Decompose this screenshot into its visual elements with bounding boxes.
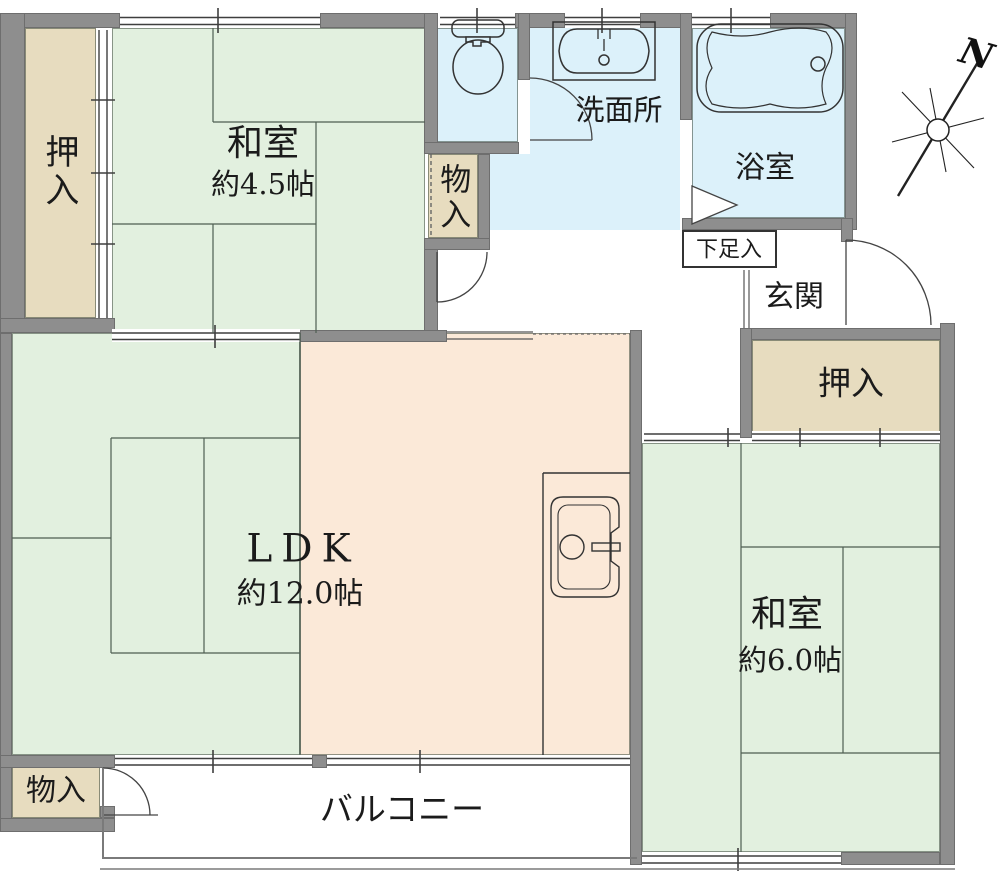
wash-basin-icon — [553, 22, 655, 80]
kitchen-sink-icon — [543, 473, 630, 755]
japanese-room-60-label: 和室 — [751, 596, 823, 634]
window-ldk-bottom-2 — [327, 750, 630, 773]
closet-top-left-label: 押入 — [40, 134, 76, 210]
window-ldk-bottom-1 — [115, 750, 312, 773]
ldk-top-opening — [447, 332, 630, 339]
balcony-label: バルコニー — [320, 793, 484, 828]
japanese-room-60-size: 約6.0帖 — [738, 645, 842, 675]
toilet-icon — [452, 20, 504, 94]
bathtub-icon — [697, 24, 843, 112]
sliding-door-room45-ldk — [112, 325, 300, 348]
japanese-room-45-label: 和室 — [227, 125, 299, 163]
closet-tl-fusuma — [91, 30, 115, 318]
storage-top-label: 物入 — [436, 163, 469, 233]
window-top-room45 — [120, 8, 320, 33]
door-storage-top — [437, 252, 487, 302]
entrance-step-line — [744, 270, 749, 328]
plan-linework: N — [0, 0, 1000, 877]
ldk-size: 約12.0帖 — [237, 578, 364, 610]
floorplan: N 押入 和室 約4.5帖 物入 洗面所 浴室 下足入 玄関 押入 LDK 約1… — [0, 0, 1000, 877]
ldk-label: LDK — [246, 530, 359, 571]
closet-right-label: 押入 — [818, 367, 884, 402]
shoe-cabinet-label: 下足入 — [696, 238, 762, 261]
japanese-room-45-size: 約4.5帖 — [211, 169, 315, 199]
sliding-door-hall-room60 — [644, 428, 740, 447]
closet-right-fusuma — [752, 428, 940, 447]
bathroom-label: 浴室 — [735, 152, 795, 184]
compass-icon: N — [892, 29, 1000, 196]
storage-bottom-label: 物入 — [26, 775, 86, 807]
compass-n-label: N — [954, 29, 1000, 79]
washroom-label: 洗面所 — [575, 95, 662, 125]
door-entrance — [846, 240, 931, 325]
entrance-label: 玄関 — [764, 281, 824, 313]
bath-folding-door — [692, 186, 737, 224]
door-storage-bottom — [103, 768, 158, 815]
window-top-bath — [692, 8, 770, 33]
